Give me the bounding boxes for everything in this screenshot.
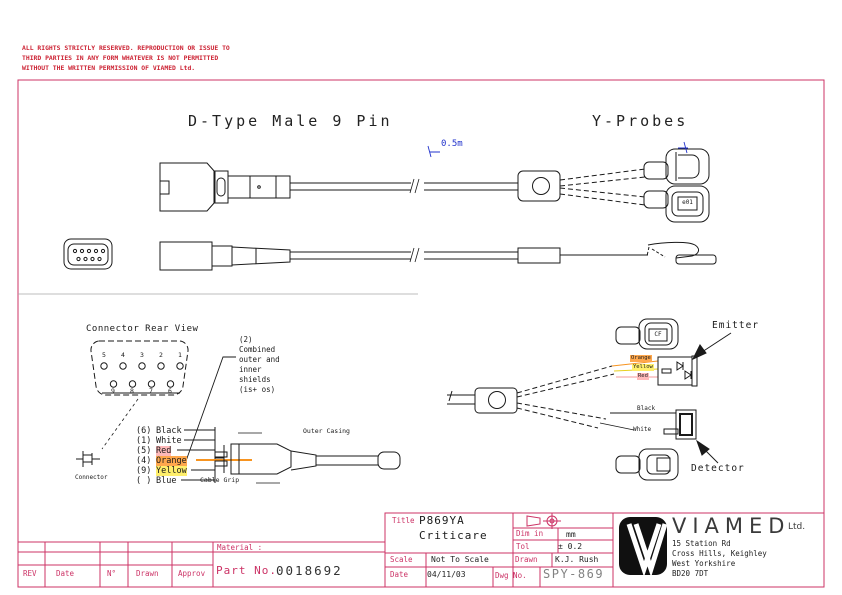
part-title-line1: P869YA xyxy=(419,514,465,527)
rev-header: REV xyxy=(23,569,37,578)
tol-label: Tol xyxy=(516,542,530,551)
moulded-connector-drawing xyxy=(215,433,400,483)
dim-value: mm xyxy=(566,530,576,540)
part-no-label: Part No. xyxy=(216,564,277,577)
title-right: Y-Probes xyxy=(592,112,688,130)
wire-pin: (6) xyxy=(136,426,151,436)
wire-color: Orange xyxy=(156,456,187,466)
tol-value: ± 0.2 xyxy=(558,542,582,552)
wire-color: White xyxy=(156,436,182,446)
wire-pin: (9) xyxy=(136,466,151,476)
scale-label: Scale xyxy=(390,555,413,564)
wire-pin: ( ) xyxy=(136,476,151,486)
date-label: Date xyxy=(390,570,408,579)
side-view-drawing xyxy=(64,239,716,270)
company-suffix: Ltd. xyxy=(788,522,805,533)
rev-header: Drawn xyxy=(136,569,159,578)
pin-number: 5 xyxy=(102,352,106,360)
title-left: D-Type Male 9 Pin xyxy=(188,112,393,130)
projection-symbol-icon xyxy=(527,513,561,529)
drawing-canvas xyxy=(0,0,842,595)
pin-number: 9 xyxy=(111,388,115,396)
company-address: 15 Station Rd Cross Hills, Keighley West… xyxy=(672,539,767,579)
pin-number: 7 xyxy=(149,388,153,396)
detector-wire-label: White xyxy=(633,426,651,433)
dwg-no-value: SPY-869 xyxy=(543,567,604,581)
wire-pin: (5) xyxy=(136,446,151,456)
viamed-logo-icon xyxy=(619,517,667,575)
pin-number: 6 xyxy=(168,388,172,396)
company-name: VIAMED xyxy=(672,514,790,539)
date-value: 04/11/03 xyxy=(427,570,466,580)
cable-length-dimension: 0.5m xyxy=(441,139,463,150)
wire-color: Black xyxy=(156,426,182,436)
part-no-value: 0018692 xyxy=(276,563,343,578)
wire-pin: (4) xyxy=(136,456,151,466)
pin-number: 8 xyxy=(130,388,134,396)
cable-grip-label: Cable Grip xyxy=(200,477,239,485)
emitter-wire-label: Yellow xyxy=(632,364,654,371)
rev-header: N° xyxy=(107,569,116,578)
part-title-line2: Criticare xyxy=(419,529,488,542)
probe-tag2-label: CF xyxy=(649,331,667,338)
pin-number: 2 xyxy=(159,352,163,360)
outer-casing-label: Outer Casing xyxy=(303,428,350,436)
pin-number: 3 xyxy=(140,352,144,360)
pin-number: 1 xyxy=(178,352,182,360)
dim-label: Dim in xyxy=(516,529,543,538)
pin-number: 4 xyxy=(121,352,125,360)
emitter-wire-label: Orange xyxy=(630,355,652,362)
top-assembly-drawing xyxy=(160,149,709,222)
detector-wire-label: Black xyxy=(637,405,655,412)
emitter-label: Emitter xyxy=(712,320,759,331)
scale-value: Not To Scale xyxy=(431,555,489,565)
dwg-no-label: Dwg No. xyxy=(495,571,527,580)
emitter-wire-label: Red xyxy=(637,373,649,380)
probe-tag-label: e01 xyxy=(679,199,696,206)
connector-label: Connector xyxy=(75,474,108,481)
probe-detail-drawing xyxy=(447,319,731,480)
material-label: Material : xyxy=(217,543,262,552)
detector-label: Detector xyxy=(691,463,745,474)
wire-color: Blue xyxy=(156,476,176,486)
drawing-sheet: ALL RIGHTS STRICTLY RESERVED. REPRODUCTI… xyxy=(0,0,842,595)
wire-color: Yellow xyxy=(156,466,187,476)
rear-view-title: Connector Rear View xyxy=(86,324,198,335)
rev-header: Date xyxy=(56,569,74,578)
drawn-value: K.J. Rush xyxy=(555,555,598,565)
shield-note: (2) Combined outer and inner shields (is… xyxy=(239,335,280,395)
rev-header: Approv xyxy=(178,569,205,578)
dimension-ticks xyxy=(428,142,688,157)
copyright-notice: ALL RIGHTS STRICTLY RESERVED. REPRODUCTI… xyxy=(22,44,230,74)
wire-pin: (1) xyxy=(136,436,151,446)
wire-color: Red xyxy=(156,446,171,456)
drawn-label: Drawn xyxy=(515,555,538,564)
title-label: Title xyxy=(392,516,415,525)
